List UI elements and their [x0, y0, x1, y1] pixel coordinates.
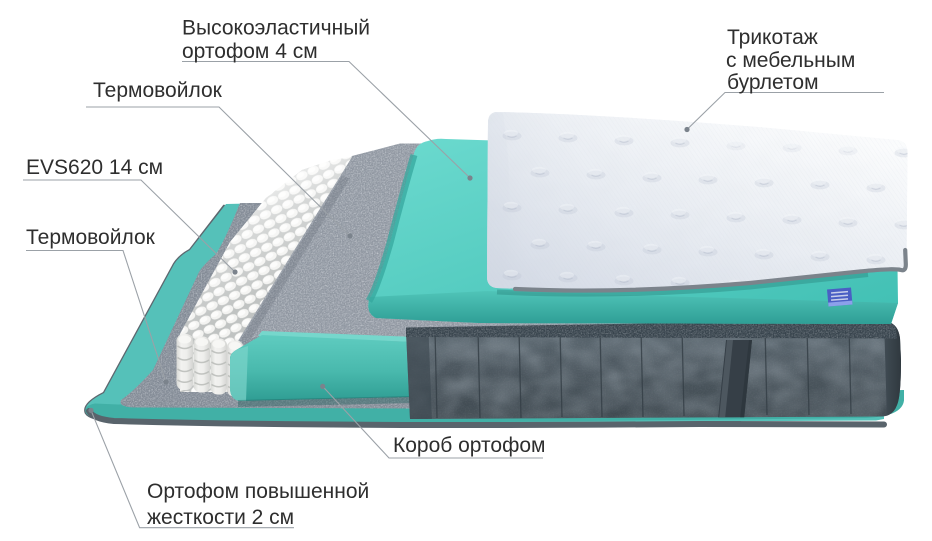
svg-text:Высокоэластичный: Высокоэластичный	[182, 17, 370, 40]
svg-text:Термовойлок: Термовойлок	[26, 226, 156, 249]
svg-text:с мебельным: с мебельным	[726, 49, 855, 72]
svg-text:Трикотаж: Трикотаж	[727, 26, 818, 49]
svg-text:Ортофом повышенной: Ортофом повышенной	[147, 480, 369, 503]
svg-text:EVS620 14 см: EVS620 14 см	[26, 156, 163, 179]
svg-text:бурлетом: бурлетом	[727, 71, 819, 94]
svg-text:Термовойлок: Термовойлок	[93, 79, 223, 102]
svg-text:Короб ортофом: Короб ортофом	[393, 434, 546, 457]
svg-text:ортофом 4 см: ортофом 4 см	[182, 40, 318, 63]
svg-text:жесткости 2 см: жесткости 2 см	[147, 506, 294, 529]
